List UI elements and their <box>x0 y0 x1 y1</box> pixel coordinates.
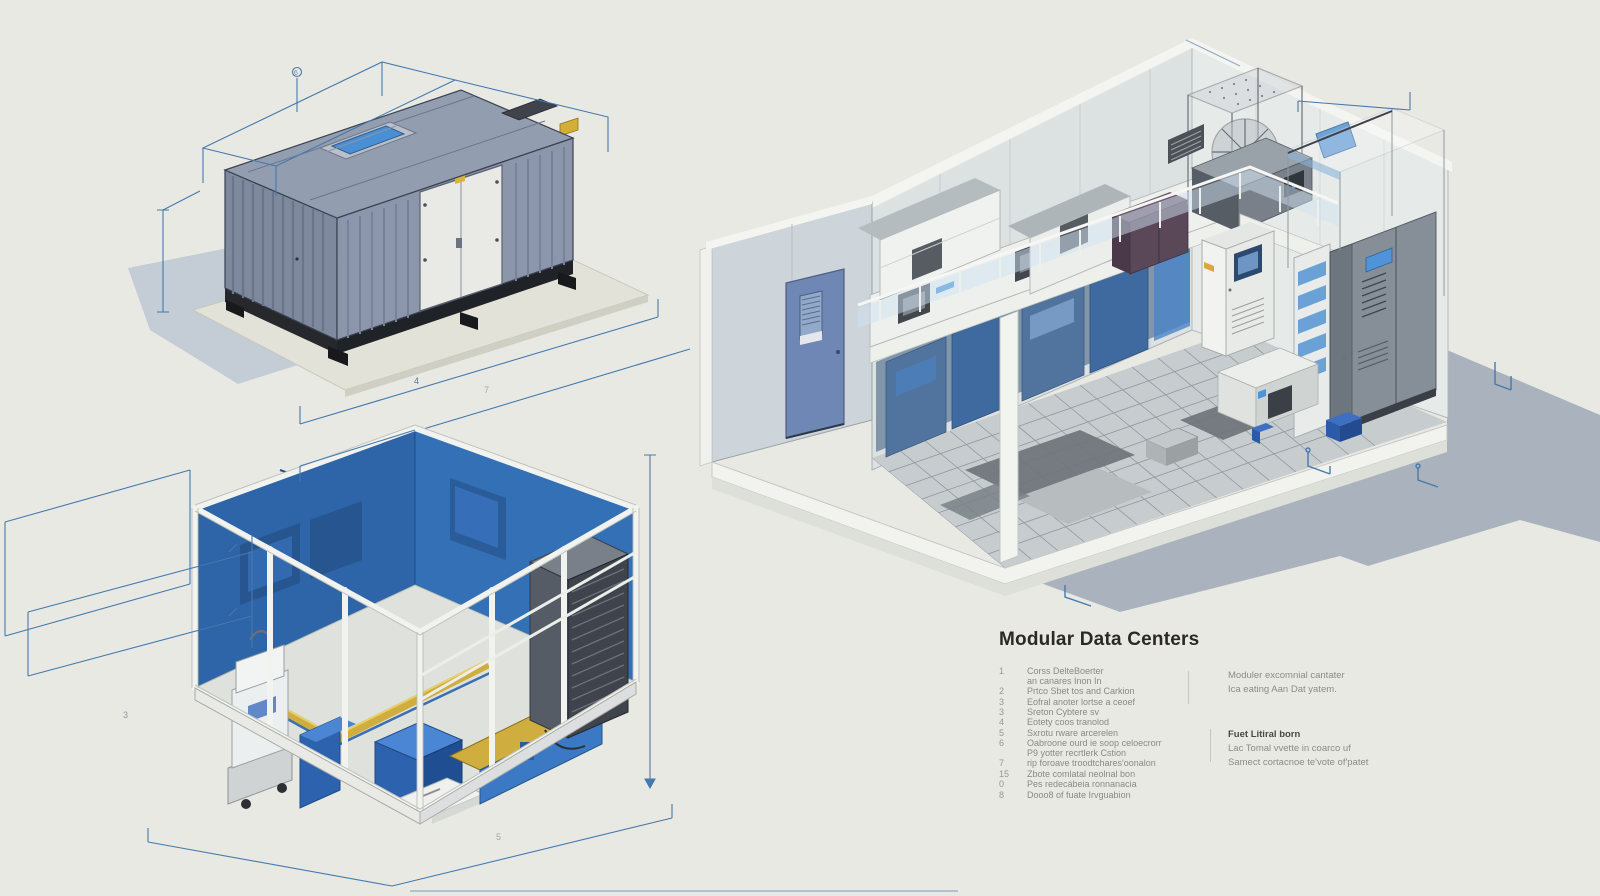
legend-item-number: 5 <box>999 729 1027 739</box>
legend-item-label: Pes redecábeia ronnanacia <box>1027 780 1137 790</box>
legend-item-label: Prtco Sbet tos and Carkion <box>1027 687 1135 697</box>
modular-data-center-diagram-page: { "title": "Modular Data Centers", "lege… <box>0 0 1600 896</box>
dim-label: 7 <box>484 385 489 395</box>
legend-item: 7rip foroave troodtchares'oonalon <box>999 759 1199 769</box>
legend-item-label: Eofral anoter lortse a ceoef <box>1027 698 1135 708</box>
legend-divider <box>1210 729 1211 762</box>
legend-item-number: 3 <box>999 698 1027 708</box>
legend-item-label: Sxrotu rware arcerelen <box>1027 729 1118 739</box>
legend-item-label: Eotety coos tranolod <box>1027 718 1109 728</box>
legend-item-number: 7 <box>999 759 1027 769</box>
legend-item: 8Dooo8 of fuate Irvguabion <box>999 791 1199 801</box>
legend-item-number: 4 <box>999 718 1027 728</box>
legend-item-number: 1 <box>999 667 1027 687</box>
legend-note-2: Lac Tomal vvette in coarco uf Samect cor… <box>1228 742 1388 769</box>
legend-item-label: Dooo8 of fuate Irvguabion <box>1027 791 1131 801</box>
building-cutaway-figure: 4 <box>700 38 1600 612</box>
legend-item-label: Oabroone ourd ie soop celoecrorr P9 yott… <box>1027 739 1162 759</box>
legend-divider <box>1188 671 1189 704</box>
legend-item-number: 15 <box>999 770 1027 780</box>
legend-item: 3Eofral anoter lortse a ceoef <box>999 698 1199 708</box>
dim-label: 5 <box>496 832 501 842</box>
cutaway-container-figure: 3 5 <box>28 425 958 891</box>
dim-label: 3 <box>123 710 128 720</box>
legend-list: 1Corss DelteBoerter an canares Inon In 2… <box>999 667 1199 801</box>
legend-item: 1Corss DelteBoerter an canares Inon In <box>999 667 1199 687</box>
legend-item: 2Prtco Sbet tos and Carkion <box>999 687 1199 697</box>
legend-item-number: 0 <box>999 780 1027 790</box>
legend-note-1: Moduler excomnial cantater Ica eating Aa… <box>1228 669 1388 696</box>
control-cabinet <box>1202 222 1274 356</box>
legend-item: 0Pes redecábeia ronnanacia <box>999 780 1199 790</box>
legend-item-number: 8 <box>999 791 1027 801</box>
legend-item-label: Zbote comlatal neolnal bon <box>1027 770 1135 780</box>
legend-item-number: 6 <box>999 739 1027 759</box>
legend-item-label: Sreton Cybtere sv <box>1027 708 1099 718</box>
legend-item-number: 3 <box>999 708 1027 718</box>
dim-label: 6 <box>294 70 298 77</box>
dim-label: 4 <box>1342 352 1347 362</box>
legend-item-label: rip foroave troodtchares'oonalon <box>1027 759 1156 769</box>
corner-column <box>1000 311 1018 563</box>
page-title: Modular Data Centers <box>999 629 1199 651</box>
legend-item: 5Sxrotu rware arcerelen <box>999 729 1199 739</box>
legend-item: 15Zbote comlatal neolnal bon <box>999 770 1199 780</box>
legend-item: 3Sreton Cybtere sv <box>999 708 1199 718</box>
dim-label: 4 <box>414 376 419 386</box>
legend-item: 6Oabroone ourd ie soop celoecrorr P9 yot… <box>999 739 1199 759</box>
legend-item-label: Corss DelteBoerter an canares Inon In <box>1027 667 1104 687</box>
legend-item: 4Eotety coos tranolod <box>999 718 1199 728</box>
legend-note-heading: Fuet Litiral born <box>1228 729 1300 740</box>
legend-item-number: 2 <box>999 687 1027 697</box>
